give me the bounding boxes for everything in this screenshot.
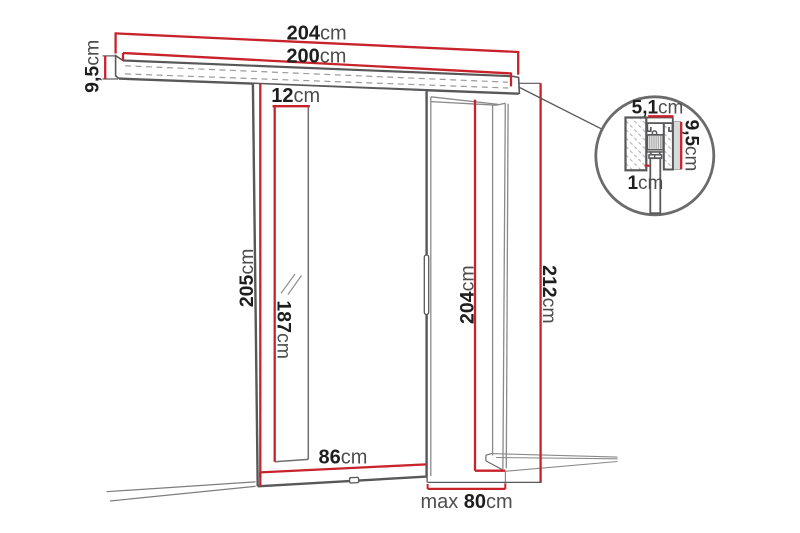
svg-text:max 80cm: max 80cm [420,491,512,513]
svg-text:9,5cm: 9,5cm [82,40,104,93]
svg-text:212cm: 212cm [538,265,560,324]
svg-text:204cm: 204cm [287,23,347,45]
svg-text:187cm: 187cm [273,300,295,359]
svg-text:9,5cm: 9,5cm [681,120,702,172]
svg-text:5,1cm: 5,1cm [632,97,684,118]
svg-text:200cm: 200cm [286,46,346,68]
svg-text:1cm: 1cm [627,173,663,194]
svg-text:12cm: 12cm [271,85,320,107]
svg-text:86cm: 86cm [319,447,368,469]
svg-text:205cm: 205cm [236,249,258,308]
svg-text:204cm: 204cm [457,265,479,324]
